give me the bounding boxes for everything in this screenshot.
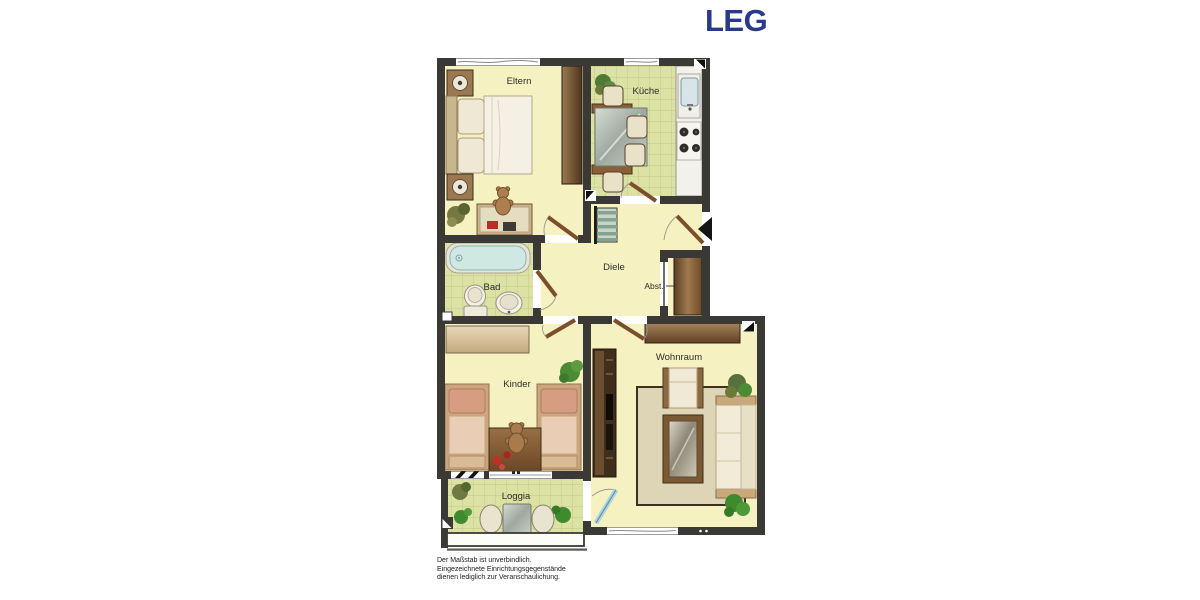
wardrobe bbox=[446, 326, 529, 353]
toy-ball bbox=[503, 451, 510, 458]
coffee-table bbox=[663, 415, 703, 483]
chair bbox=[627, 116, 647, 138]
disclaimer-line-3: dienen lediglich zur Veranschaulichung. bbox=[437, 574, 560, 581]
sofa bbox=[716, 396, 756, 498]
stove bbox=[677, 122, 701, 160]
corner-marker bbox=[694, 59, 706, 69]
kids-bed bbox=[445, 384, 489, 470]
disclaimer-text: Der Maßstab ist unverbindlich. Eingezeic… bbox=[437, 557, 566, 583]
corner-marker bbox=[585, 190, 596, 201]
toy-ball bbox=[493, 457, 502, 466]
double-bed bbox=[484, 96, 532, 174]
wall-niche bbox=[442, 312, 452, 321]
chair bbox=[532, 505, 554, 533]
room-label-abst: Abst. bbox=[644, 281, 663, 291]
room-label-eltern: Eltern bbox=[507, 76, 532, 87]
shelf-unit bbox=[593, 349, 616, 477]
corner-marker bbox=[742, 321, 755, 332]
room-label-kinder: Kinder bbox=[503, 379, 530, 390]
loggia-railing bbox=[447, 533, 584, 546]
bathtub-inner bbox=[450, 246, 526, 270]
sink-basin bbox=[681, 78, 698, 106]
radiator bbox=[597, 208, 617, 242]
sofa-armrest bbox=[716, 396, 756, 405]
wardrobe bbox=[562, 66, 582, 184]
toilet-tank bbox=[464, 306, 487, 317]
floorplan-drawing: Eltern Küche Diele Abst. Bad Kinder Wohn… bbox=[0, 0, 1200, 600]
loggia-edge-line bbox=[447, 549, 587, 551]
kids-bed bbox=[537, 384, 581, 470]
room-label-kueche: Küche bbox=[633, 86, 660, 97]
room-diele-furniture bbox=[594, 206, 617, 244]
storage-cabinet bbox=[674, 257, 702, 315]
pillow bbox=[541, 389, 577, 413]
disclaimer-line-2: Eingezeichnete Einrichtungsgegenstände bbox=[437, 566, 566, 573]
door-opening bbox=[583, 481, 591, 521]
pillow bbox=[458, 99, 484, 134]
room-label-wohnraum: Wohnraum bbox=[656, 352, 702, 363]
toy-red bbox=[487, 221, 498, 229]
chair bbox=[625, 144, 645, 166]
disclaimer-line-1: Der Maßstab ist unverbindlich. bbox=[437, 557, 532, 564]
pillow bbox=[449, 389, 485, 413]
balcony-table bbox=[503, 504, 531, 534]
room-abst-furniture bbox=[674, 257, 702, 315]
blanket bbox=[541, 416, 577, 454]
bed-headboard bbox=[446, 96, 457, 174]
room-label-bad: Bad bbox=[484, 282, 501, 293]
floorplan-page: LEG bbox=[0, 0, 1200, 600]
pillow bbox=[458, 138, 484, 173]
room-label-loggia: Loggia bbox=[502, 491, 531, 502]
blanket bbox=[449, 416, 485, 454]
armchair bbox=[663, 368, 703, 408]
toy-dark bbox=[503, 222, 516, 231]
toy-ball bbox=[499, 464, 505, 470]
chair bbox=[480, 505, 502, 533]
chair bbox=[603, 172, 623, 192]
corner-marker bbox=[441, 517, 453, 529]
room-label-diele: Diele bbox=[603, 262, 625, 273]
chair bbox=[603, 86, 623, 106]
